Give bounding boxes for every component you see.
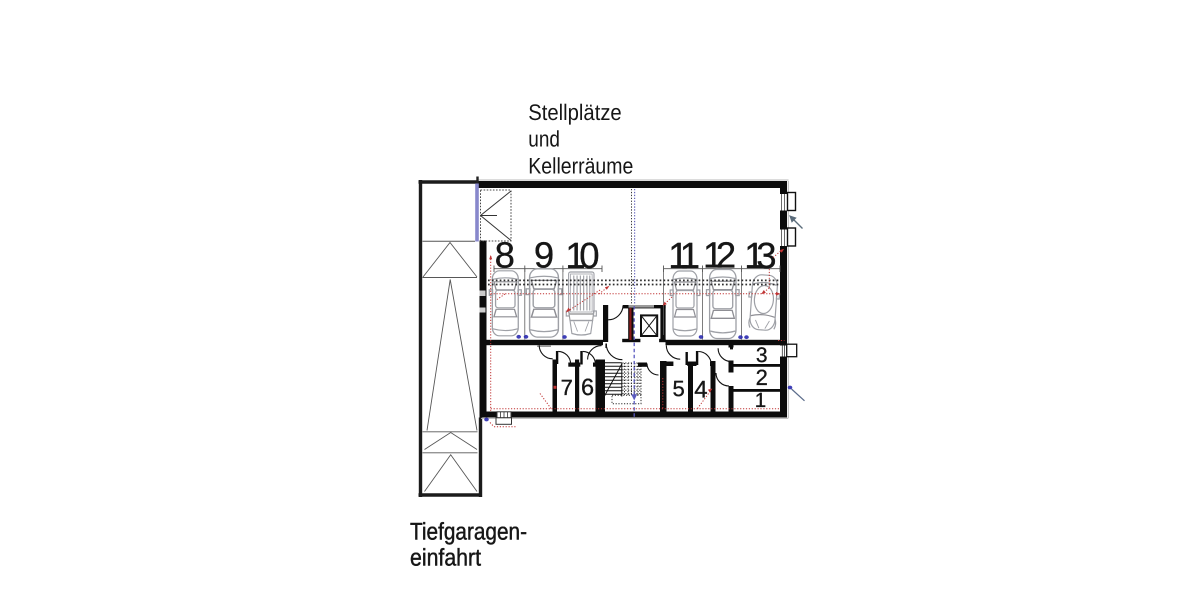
svg-text:Stellplätze: Stellplätze [528, 100, 621, 125]
svg-text:einfahrt: einfahrt [410, 545, 481, 572]
svg-text:2: 2 [756, 365, 768, 390]
svg-text:5: 5 [673, 376, 685, 401]
svg-text:8: 8 [495, 234, 515, 275]
svg-text:und: und [528, 127, 560, 152]
svg-text:7: 7 [561, 375, 573, 400]
svg-text:Kellerräume: Kellerräume [528, 153, 633, 178]
svg-text:3: 3 [756, 344, 768, 367]
svg-text:Tiefgaragen-: Tiefgaragen- [410, 519, 527, 546]
svg-text:4: 4 [694, 376, 707, 403]
svg-text:6: 6 [581, 374, 594, 400]
